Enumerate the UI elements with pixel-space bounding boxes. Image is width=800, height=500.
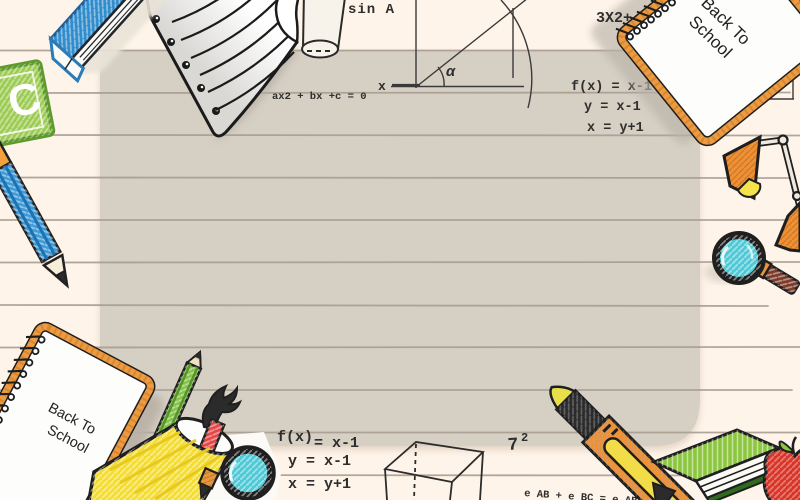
svg-text:x = y+1: x = y+1: [587, 121, 644, 136]
svg-text:α: α: [446, 64, 456, 81]
svg-text:x = y+1: x = y+1: [288, 476, 351, 493]
svg-text:x: x: [378, 79, 386, 94]
svg-text:y = x-1: y = x-1: [584, 100, 641, 115]
svg-text:3X2+: 3X2+: [596, 10, 632, 27]
svg-text:2: 2: [521, 431, 528, 445]
svg-text:f(x): f(x): [277, 429, 313, 446]
svg-text:= x-1: = x-1: [314, 435, 359, 452]
svg-text:sin A: sin A: [348, 2, 395, 18]
svg-text:7: 7: [507, 435, 519, 456]
svg-text:ax2 + bx +c = 0: ax2 + bx +c = 0: [272, 91, 367, 103]
svg-text:y = x-1: y = x-1: [288, 453, 351, 470]
